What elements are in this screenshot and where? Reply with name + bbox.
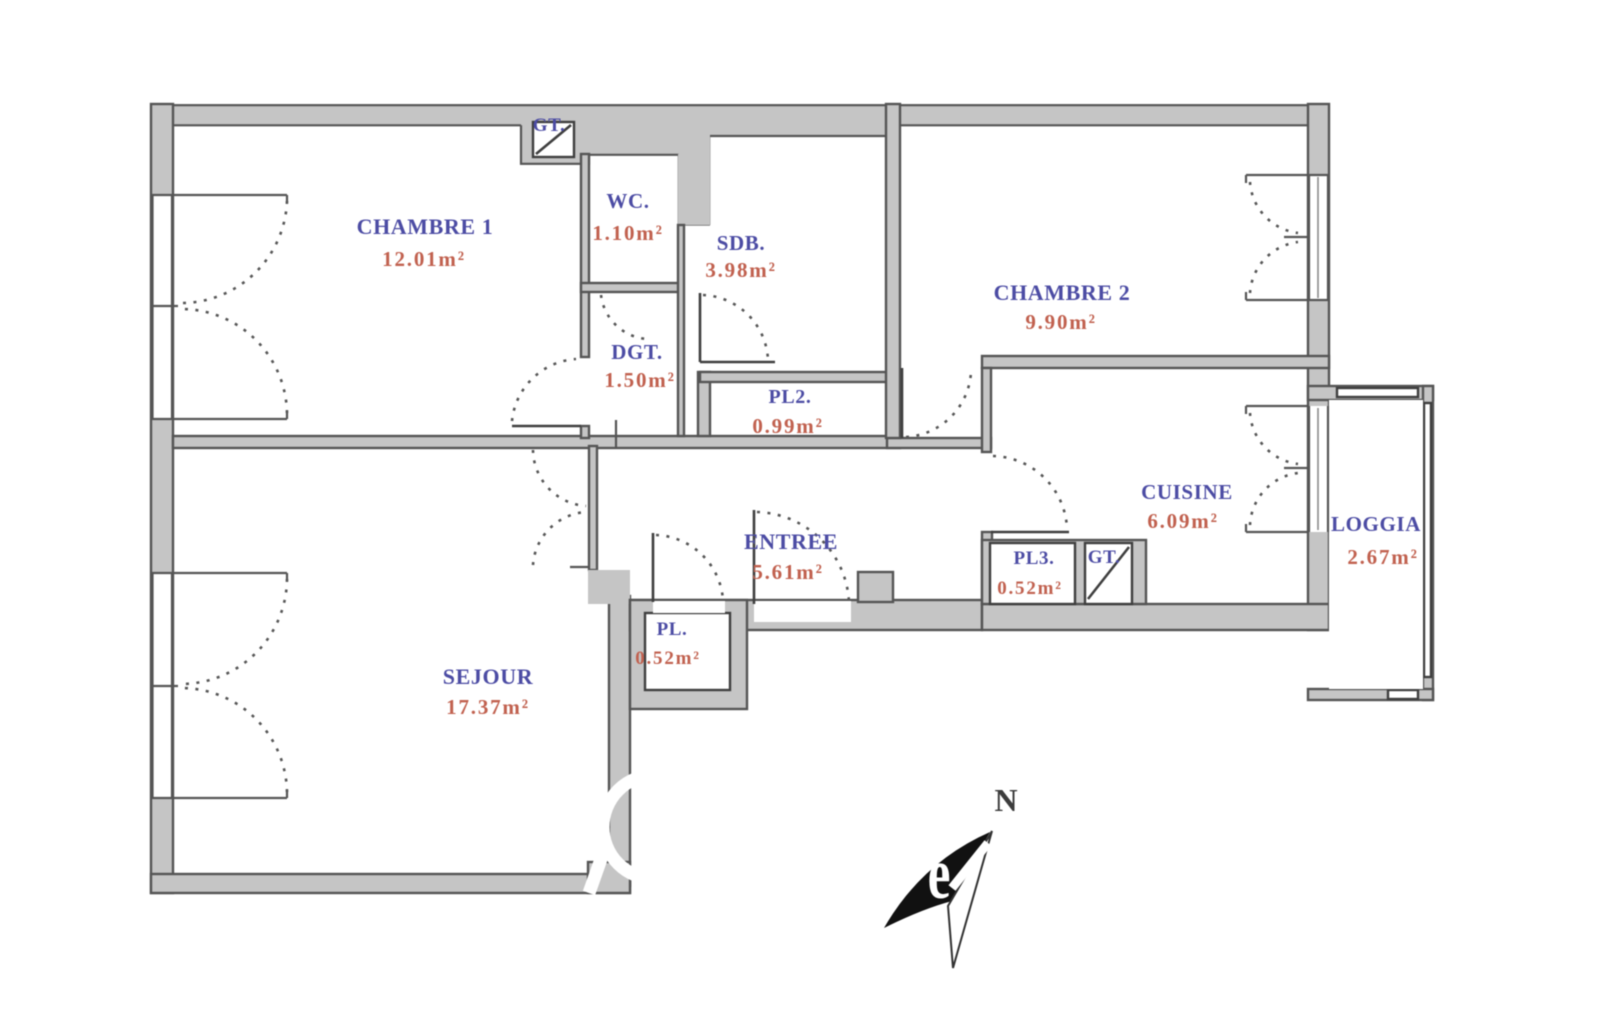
svg-text:PL3.: PL3. (1014, 548, 1055, 569)
svg-text:3.98m²: 3.98m² (705, 258, 776, 282)
svg-text:0.99m²: 0.99m² (752, 414, 823, 438)
svg-text:9.90m²: 9.90m² (1025, 310, 1096, 334)
svg-text:CHAMBRE 2: CHAMBRE 2 (994, 280, 1131, 305)
svg-text:WC.: WC. (606, 189, 649, 213)
svg-text:5.61m²: 5.61m² (752, 560, 823, 584)
svg-text:e: e (928, 833, 951, 914)
svg-text:SEJOUR: SEJOUR (443, 664, 534, 689)
svg-text:SDB.: SDB. (717, 231, 766, 255)
svg-text:1.50m²: 1.50m² (604, 368, 675, 392)
svg-text:DGT.: DGT. (611, 340, 663, 364)
svg-text:PL.: PL. (657, 619, 688, 640)
svg-text:LOGGIA: LOGGIA (1331, 512, 1421, 536)
svg-text:0.52m²: 0.52m² (997, 578, 1063, 599)
svg-text:12.01m²: 12.01m² (382, 247, 466, 271)
svg-text:CUISINE: CUISINE (1141, 480, 1233, 504)
svg-text:2.67m²: 2.67m² (1347, 545, 1418, 569)
svg-text:1.10m²: 1.10m² (592, 221, 663, 245)
svg-text:GT.: GT. (1088, 547, 1121, 568)
svg-text:17.37m²: 17.37m² (446, 695, 530, 719)
svg-text:PL2.: PL2. (769, 386, 812, 408)
svg-text:0.52m²: 0.52m² (635, 648, 701, 669)
svg-text:CHAMBRE 1: CHAMBRE 1 (357, 214, 494, 239)
svg-text:GT.: GT. (533, 115, 566, 136)
svg-text:6.09m²: 6.09m² (1147, 509, 1218, 533)
svg-text:ENTREE: ENTREE (744, 529, 838, 554)
svg-text:N: N (994, 782, 1017, 818)
